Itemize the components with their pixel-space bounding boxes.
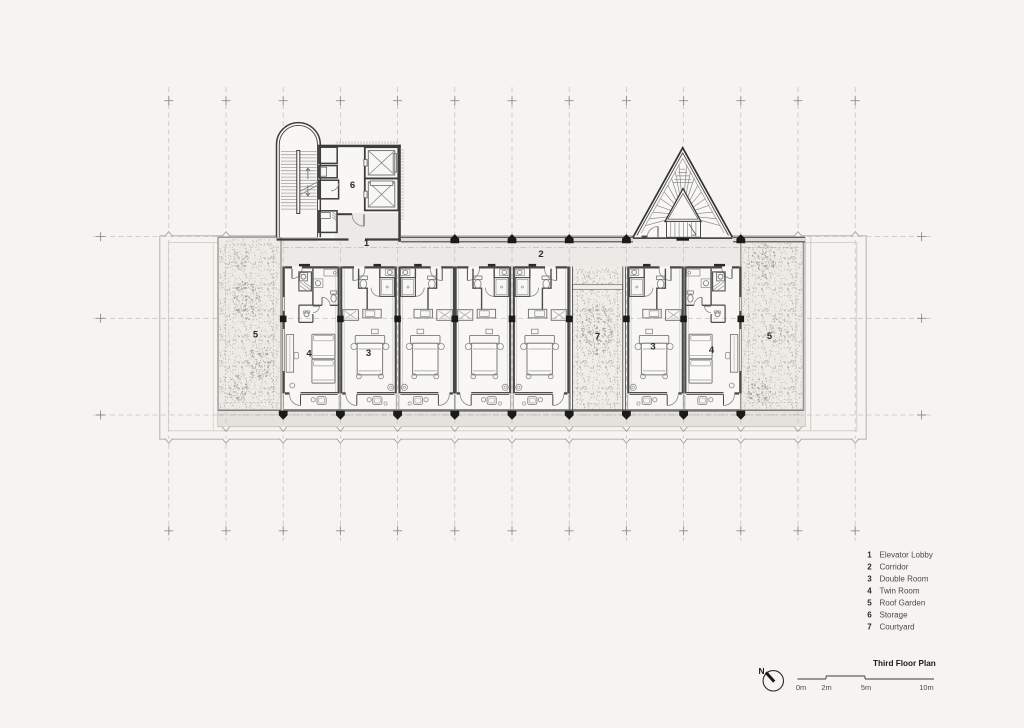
svg-text:5m: 5m	[861, 683, 871, 692]
svg-text:Corridor: Corridor	[880, 563, 909, 572]
svg-text:7: 7	[595, 332, 600, 343]
svg-text:5: 5	[867, 599, 872, 608]
svg-text:0m: 0m	[796, 683, 806, 692]
svg-text:2: 2	[867, 563, 872, 572]
svg-text:7: 7	[867, 623, 872, 632]
svg-text:Courtyard: Courtyard	[880, 623, 915, 632]
svg-text:Third Floor Plan: Third Floor Plan	[873, 659, 936, 668]
svg-text:Storage: Storage	[880, 611, 909, 620]
svg-text:3: 3	[650, 342, 655, 353]
svg-text:6: 6	[867, 611, 872, 620]
svg-text:1: 1	[867, 551, 872, 560]
svg-text:1: 1	[364, 238, 370, 249]
svg-text:6: 6	[350, 180, 355, 191]
svg-text:5: 5	[767, 331, 773, 342]
svg-text:10m: 10m	[919, 683, 933, 692]
svg-text:3: 3	[366, 348, 371, 359]
svg-text:4: 4	[709, 345, 715, 356]
svg-text:4: 4	[306, 349, 312, 360]
svg-text:5: 5	[253, 330, 259, 341]
svg-text:Twin Room: Twin Room	[880, 587, 920, 596]
svg-text:4: 4	[867, 587, 872, 596]
svg-text:N: N	[758, 666, 764, 676]
svg-text:2: 2	[538, 249, 543, 260]
svg-text:Elevator Lobby: Elevator Lobby	[880, 551, 933, 560]
svg-text:Roof Garden: Roof Garden	[880, 599, 926, 608]
svg-text:2m: 2m	[821, 683, 831, 692]
svg-text:Double Room: Double Room	[880, 575, 929, 584]
svg-text:3: 3	[867, 575, 872, 584]
